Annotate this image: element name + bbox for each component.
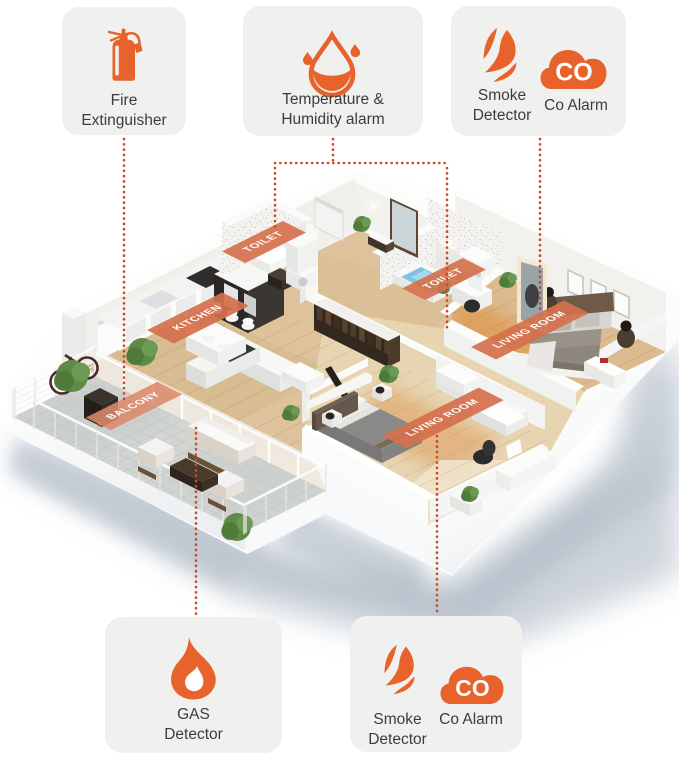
svg-text:CO: CO [555,59,593,87]
svg-text:CO: CO [455,675,489,701]
